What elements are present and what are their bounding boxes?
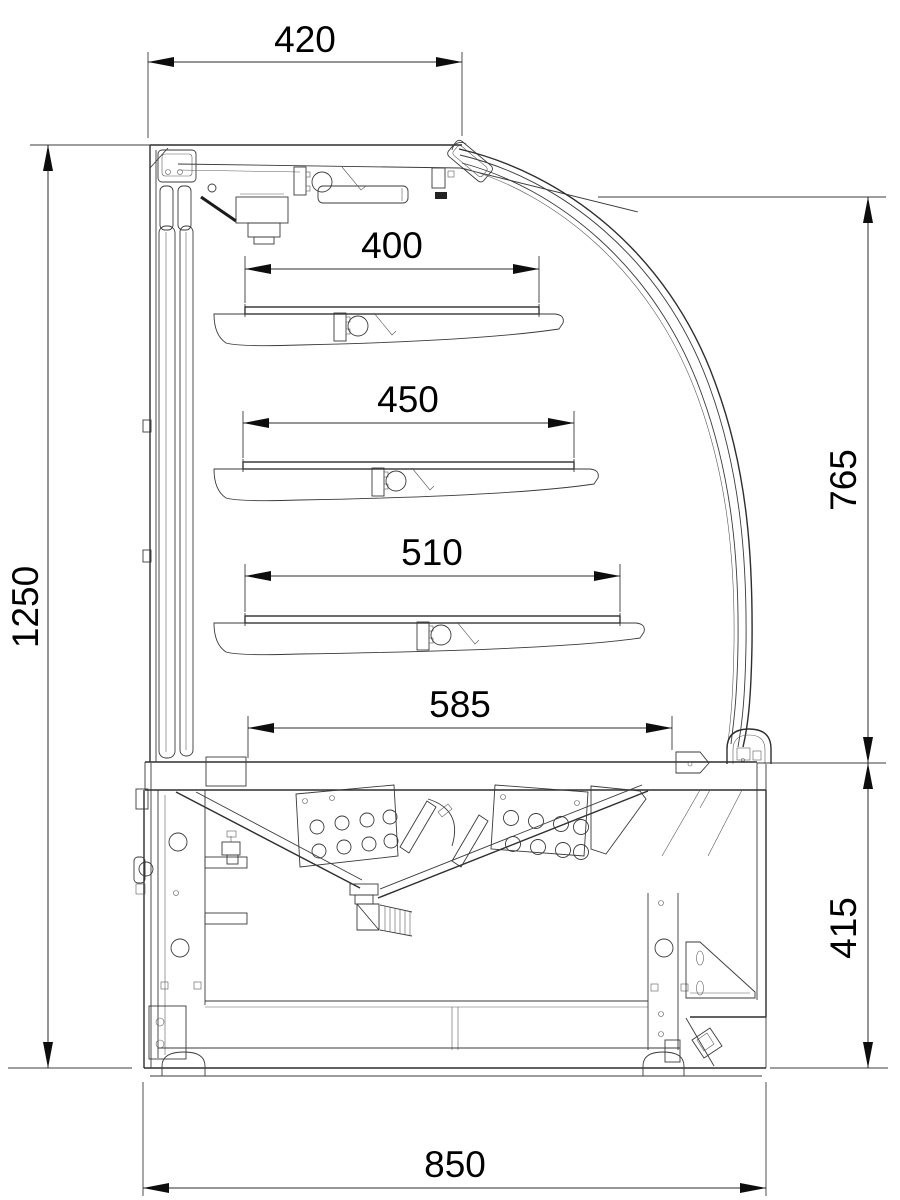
dim-label-400: 400 <box>361 225 423 266</box>
shelf-2 <box>214 459 598 501</box>
post-tab <box>205 857 247 868</box>
shelf-3-light-fixture <box>417 622 479 650</box>
technical-drawing-page: 420 400 450 510 585 1250 <box>0 0 900 1200</box>
dim-label-765: 765 <box>823 449 864 511</box>
dim-label-420: 420 <box>274 19 336 60</box>
well-right-bracket <box>591 786 646 854</box>
rear-panel-outer <box>159 226 175 758</box>
dim-label-585: 585 <box>429 684 491 725</box>
right-bracket-plate <box>686 942 755 998</box>
front-sill <box>145 752 766 856</box>
shelf-2-light-fixture <box>372 468 434 496</box>
fan-unit <box>400 799 488 867</box>
dimension-shelf-2-depth: 450 <box>243 379 574 458</box>
lamp-tube <box>431 625 451 645</box>
perforated-panel-left <box>296 785 398 867</box>
dimension-canopy-depth: 420 <box>148 19 462 138</box>
shelf-3 <box>214 613 644 655</box>
base-frame <box>134 763 766 1076</box>
foot-left <box>162 1052 205 1076</box>
dimension-overall-height: 1250 <box>5 145 150 1068</box>
foot-right <box>643 1052 684 1076</box>
lamp-tube <box>386 471 406 491</box>
glass-bottom-cap <box>727 729 771 764</box>
curved-front-glass <box>459 149 771 764</box>
evaporator-box <box>236 194 288 244</box>
canopy-fixing-hole <box>208 184 216 192</box>
shelf-1-light-fixture <box>334 313 396 341</box>
dim-label-510: 510 <box>401 532 463 573</box>
rear-panel-inner <box>180 226 193 756</box>
glass-top-bracket <box>432 168 454 199</box>
rear-top-hinge <box>158 150 196 230</box>
display-case-section-drawing: 420 400 450 510 585 1250 <box>0 0 900 1200</box>
dim-label-850: 850 <box>424 1144 486 1185</box>
display-case <box>134 139 771 1076</box>
post-tab <box>205 913 247 924</box>
dim-label-450: 450 <box>377 379 439 420</box>
canopy-light-fixture <box>294 167 408 203</box>
bottom-left-bracket <box>149 1006 186 1059</box>
dimension-glass-front-height: 765 <box>598 197 886 763</box>
dimension-shelf-3-depth: 510 <box>245 532 620 612</box>
back-wall <box>143 145 193 762</box>
lamp-tube <box>312 172 332 192</box>
dimension-base-height: 415 <box>770 763 888 1068</box>
right-pedestal <box>665 1018 722 1066</box>
shelf-2-underside <box>214 469 598 501</box>
shelf-1 <box>214 304 563 346</box>
drain-assembly <box>350 884 412 936</box>
dim-label-415: 415 <box>823 897 864 959</box>
lamp-tube <box>348 316 368 336</box>
dimension-base-deck-depth: 585 <box>248 684 672 758</box>
shelf-1-underside <box>214 314 563 346</box>
dim-label-1250: 1250 <box>5 566 46 648</box>
dimension-shelf-1-depth: 400 <box>245 225 539 303</box>
perforated-panel-right <box>491 785 589 860</box>
dimension-overall-depth: 850 <box>143 1082 766 1196</box>
well-left-valve <box>222 831 240 864</box>
